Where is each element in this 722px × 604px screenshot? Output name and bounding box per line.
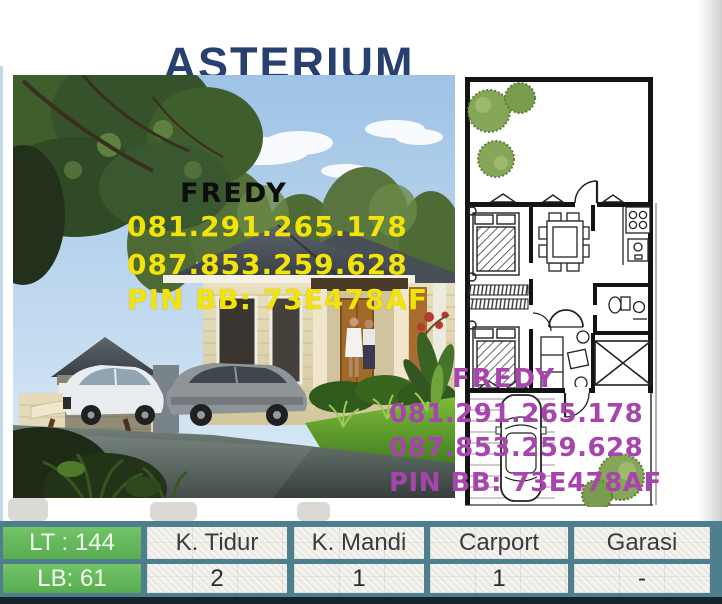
right-edge-shadow [698,0,722,521]
column-value: 1 [430,564,568,593]
left-edge-strip [0,66,3,522]
photo-contact-overlay: FREDY 081.291.265.178 087.853.259.628 PI… [13,75,455,498]
spec-col-kmandi: K. Mandi 1 [294,527,424,593]
spec-table: LT : 144 LB: 61 K. Tidur 2 K. Mandi 1 Ca… [0,521,722,598]
phone-number: 081.291.265.178 [127,210,408,243]
phone-number: 087.853.259.628 [127,248,408,281]
lb-cell: LB: 61 [3,564,141,593]
agent-name: FREDY [13,178,455,209]
column-header: K. Tidur [147,527,287,559]
flyer-page: ASTERIUM [0,0,722,604]
house-photo: FREDY 081.291.265.178 087.853.259.628 PI… [13,75,455,498]
car-topview-icon [496,395,546,501]
decorative-tab [297,502,330,521]
floor-plan [463,75,657,507]
lt-cell: LT : 144 [3,527,141,559]
floor-plan-art [463,75,657,507]
column-value: - [574,564,710,593]
column-header: Garasi [574,527,710,559]
spec-col-carport: Carport 1 [430,527,568,593]
spec-col-ktidur: K. Tidur 2 [147,527,287,593]
dining-table-icon [539,213,589,271]
column-value: 2 [147,564,287,593]
bed-icon [468,321,519,389]
column-header: Carport [430,527,568,559]
wardrobe-icon [468,299,528,309]
column-header: K. Mandi [294,527,424,559]
spec-col-area: LT : 144 LB: 61 [3,527,141,593]
bb-pin: PIN BB: 73E478AF [127,283,428,316]
bottom-bar [0,597,722,604]
wardrobe-icon [468,285,528,295]
column-value: 1 [294,564,424,593]
decorative-tab [8,498,48,521]
bed-icon [468,207,519,281]
spec-col-garasi: Garasi - [574,527,710,593]
decorative-tab [150,502,197,521]
